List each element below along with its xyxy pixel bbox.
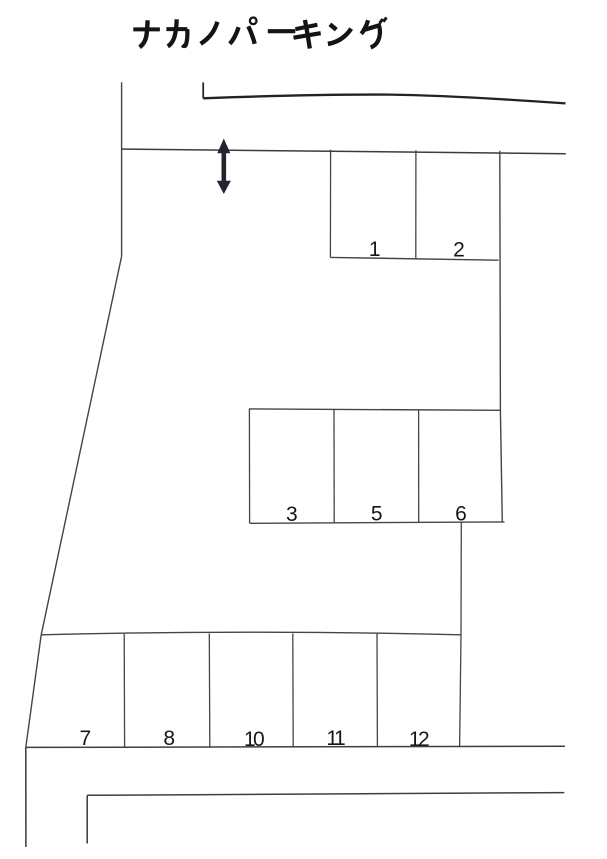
svg-text:1: 1 (369, 238, 381, 261)
svg-text:12: 12 (409, 728, 429, 751)
svg-text:3: 3 (286, 503, 298, 526)
svg-text:6: 6 (455, 503, 467, 526)
svg-text:2: 2 (453, 239, 465, 262)
svg-text:5: 5 (371, 503, 383, 526)
